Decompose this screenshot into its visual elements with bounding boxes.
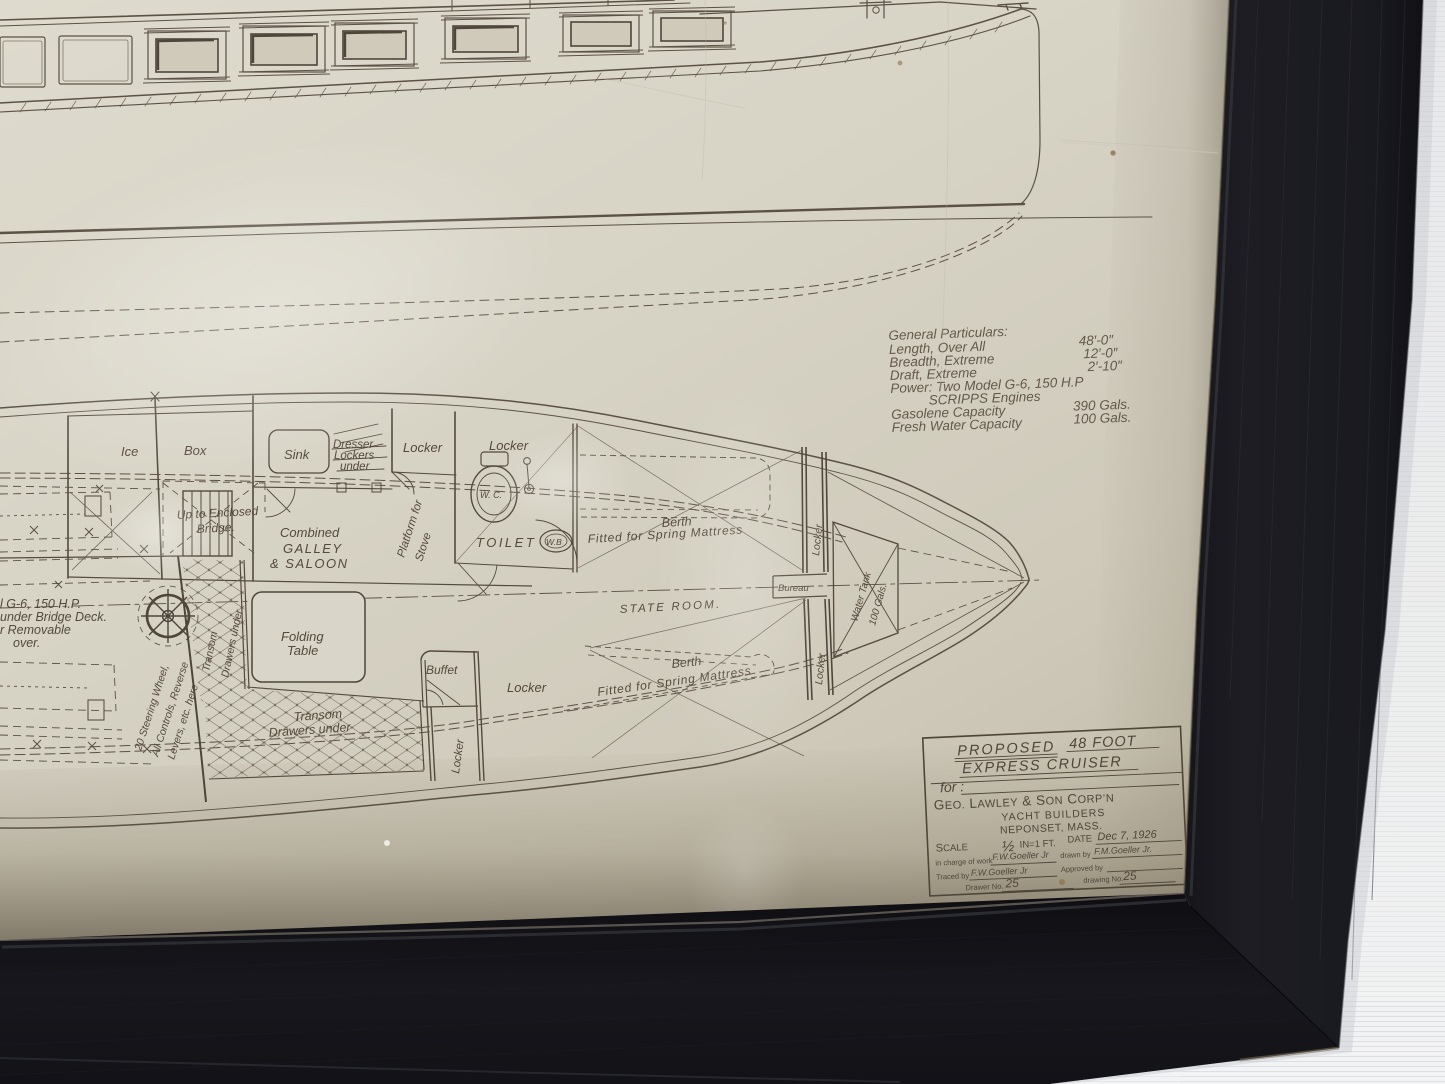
svg-text:W.B: W.B [546,537,562,547]
svg-text:Approved by: Approved by [1061,863,1104,874]
svg-text:Table: Table [287,643,318,658]
svg-text:& SALOON: & SALOON [270,556,348,571]
svg-text:over.: over. [13,636,40,650]
svg-text:100 Gals.: 100 Gals. [1073,410,1131,427]
svg-text:drawing No.: drawing No. [1083,874,1123,885]
svg-text:r Removable: r Removable [0,623,71,637]
svg-text:Buffet: Buffet [426,663,458,677]
svg-text:under Bridge Deck.: under Bridge Deck. [0,610,107,624]
svg-text:IN=1 FT.: IN=1 FT. [1019,838,1056,851]
svg-text:Combined: Combined [280,525,340,540]
svg-text:Drawer No.: Drawer No. [965,882,1003,893]
svg-text:l G-6, 150 H.P.: l G-6, 150 H.P. [0,597,81,611]
svg-text:GALLEY: GALLEY [283,541,343,556]
svg-text:for :: for : [940,778,965,795]
svg-text:DATE: DATE [1067,833,1092,845]
svg-text:Locker: Locker [403,440,443,455]
svg-text:2′-10″: 2′-10″ [1086,358,1123,374]
svg-text:SCALE: SCALE [935,841,968,854]
svg-text:Locker: Locker [507,680,547,695]
svg-text:Folding: Folding [281,629,324,644]
svg-text:Traced by: Traced by [936,871,970,882]
svg-text:under: under [340,461,371,473]
svg-text:drawn by: drawn by [1060,850,1091,860]
svg-text:TOILET: TOILET [476,535,536,550]
